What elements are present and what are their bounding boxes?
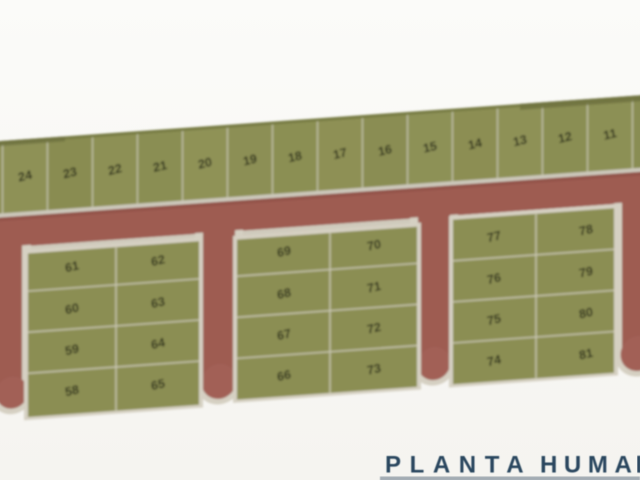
svg-text:HUMANIZADA: HUMANIZADA xyxy=(540,452,640,479)
svg-text:PLANTA: PLANTA xyxy=(385,452,532,479)
